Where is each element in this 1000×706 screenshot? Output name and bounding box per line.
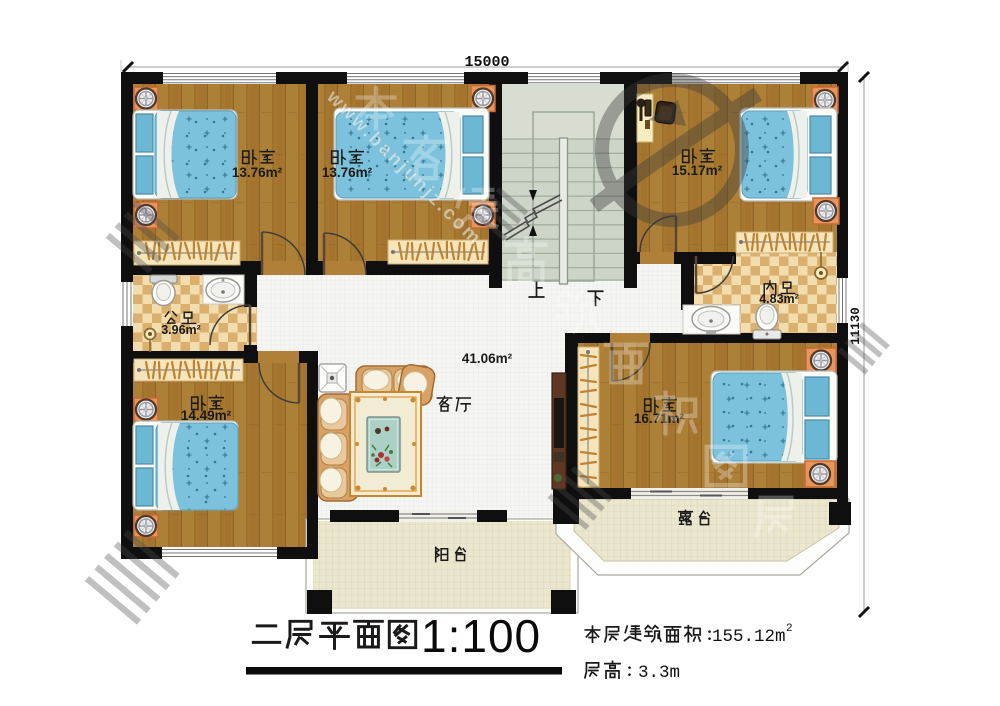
svg-text:4.83m²: 4.83m² [759,292,799,306]
svg-text:3.3m: 3.3m [638,663,680,683]
svg-text:14.49m²: 14.49m² [181,408,232,423]
svg-text:15.17m²: 15.17m² [672,163,723,178]
svg-text:2: 2 [786,623,793,635]
svg-text:13.76m²: 13.76m² [322,165,373,180]
svg-text:13.76m²: 13.76m² [232,165,283,180]
svg-text:3.96m²: 3.96m² [161,323,201,337]
svg-text:41.06m²: 41.06m² [462,351,513,366]
svg-text:15000: 15000 [464,54,509,71]
svg-text:155.12m: 155.12m [712,627,786,647]
svg-text:1:100: 1:100 [421,610,541,662]
